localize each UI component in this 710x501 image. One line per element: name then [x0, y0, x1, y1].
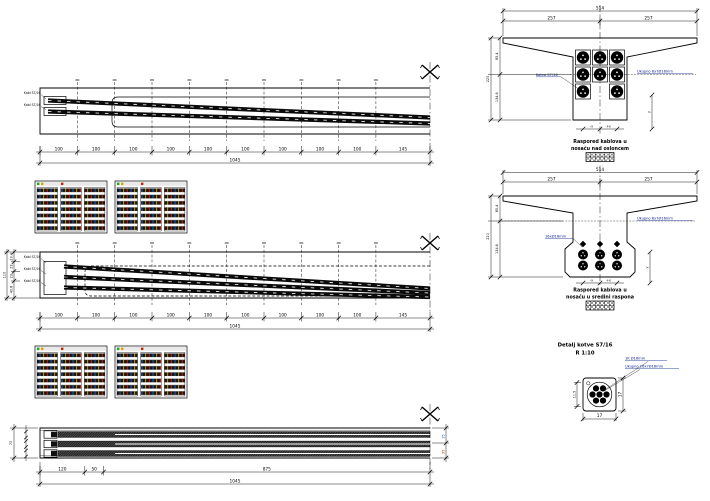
- dim-label: 23.4: [9, 253, 13, 261]
- leader-line: [41, 259, 46, 287]
- cross-section-over-support: 514 257 257 Ukupno 8x7Ø16mm Kotva S7/16 …: [486, 5, 699, 168]
- dim-label: 100: [279, 146, 287, 152]
- dim-label: 100: [167, 312, 175, 318]
- dim-label: 23: [9, 274, 13, 278]
- total-cables-label: Ukupno 8x7Ø16mm: [637, 216, 673, 221]
- dim-label: 35: [441, 434, 445, 438]
- dim-label: 100: [204, 312, 212, 318]
- axis-dimension: -x +x y: [576, 93, 654, 131]
- section-caption: Raspored kablova u: [573, 287, 627, 293]
- dim-label: 40.8: [9, 286, 13, 294]
- cable-leader-label: Kabl S7/16: [24, 103, 41, 107]
- section-caption: nosaču u sredini raspona: [566, 293, 634, 300]
- dim-label: 145: [399, 146, 407, 152]
- dim-label: 100: [167, 146, 175, 152]
- dim-label: 875: [263, 466, 271, 472]
- technical-drawing: Kabl S7/16 Kabl S7/16 100 100 100 100 10…: [0, 0, 710, 501]
- axis-label: y: [647, 111, 651, 113]
- axis-label: +x: [606, 278, 611, 282]
- dim-label: 100: [241, 146, 249, 152]
- strand-label: 1K Ø16mm: [625, 355, 646, 360]
- cable-band: [48, 101, 430, 124]
- cable-leader-label: Kabl S7/16: [24, 255, 41, 259]
- drawing-canvas: Kabl S7/16 Kabl S7/16 100 100 100 100 10…: [0, 0, 710, 501]
- dim-label: 100: [316, 312, 324, 318]
- dim-label: 100: [129, 312, 137, 318]
- dimension-chain: 120 50 875 1045: [36, 462, 434, 487]
- anchor-block: [44, 431, 57, 457]
- dim-label: 100: [241, 312, 249, 318]
- dim-label: 100: [279, 312, 287, 318]
- left-dimension-chain: 70: [9, 424, 38, 462]
- cable-band: [64, 267, 430, 298]
- dim-label: 100: [92, 312, 100, 318]
- dim-label: 257: [644, 15, 652, 21]
- cable-position-table: [35, 181, 107, 233]
- location-key-icon: [586, 153, 614, 162]
- dimension-chain: 100 100 100 100 100 100 100 100 100 145 …: [36, 312, 434, 332]
- axis-label: -x: [590, 278, 593, 282]
- total-cables-label: Ukupno 8x7Ø16mm: [637, 69, 673, 74]
- dim-label: 85.4: [495, 52, 499, 60]
- axis-label: +x: [606, 124, 611, 128]
- dim-label: 11.5: [572, 391, 576, 399]
- cross-section-midspan: 514 257 257 Ukupno 8x7Ø16mm 16xØ16mm 85.…: [486, 166, 699, 310]
- detail-title: Detalj kotve S7/16: [558, 343, 613, 349]
- plan-view: 70 35 35 120 50 875 1045: [9, 404, 449, 487]
- cable-position-table: [115, 346, 187, 398]
- dim-label: 100: [353, 312, 361, 318]
- left-dimension-chain: 85.4 134.6 220: [486, 36, 571, 122]
- dim-label: 23: [9, 264, 13, 268]
- dim-total-label: 1045: [230, 323, 241, 329]
- cable-leader-label: Kabl S7/16: [24, 91, 41, 95]
- dim-total-label: 1045: [230, 478, 241, 484]
- leader-line: [573, 238, 582, 247]
- location-key-icon: [586, 301, 614, 310]
- anchor-label: Kotva S7/16: [536, 73, 558, 77]
- dim-total-label: 220: [486, 233, 490, 239]
- cable-leader-label: Kabl S7/16: [24, 279, 41, 283]
- dim-label: 100: [129, 146, 137, 152]
- dim-total-label: 1045: [230, 157, 241, 163]
- strand-dots: [589, 385, 609, 403]
- dim-label: 17: [597, 413, 603, 419]
- dim-label: 257: [644, 176, 652, 182]
- dim-label: 120: [58, 466, 66, 472]
- grout-hole: [587, 382, 590, 385]
- section-caption: Raspored kablova u: [573, 139, 627, 145]
- cable-leader-label: Kabl S7/16: [24, 267, 41, 271]
- elevation-midspan-view: Kabl S7/16 Kabl S7/16 Kabl S7/16 23.4 23…: [2, 233, 439, 332]
- dimension-chain: 100 100 100 100 100 100 100 100 100 145 …: [36, 146, 434, 166]
- dim-label: 100: [92, 146, 100, 152]
- dim-label: 100: [353, 146, 361, 152]
- dim-label: 100: [55, 146, 63, 152]
- cable-position-table: [35, 346, 107, 398]
- section-caption: nosaču nad osloncem: [571, 145, 629, 152]
- dim-label: 257: [547, 15, 555, 21]
- right-dimension-chain: 35 35: [432, 424, 449, 462]
- detail-scale: R 1:10: [575, 351, 594, 357]
- dim-label: 134.6: [495, 244, 499, 254]
- dim-label: 100: [55, 312, 63, 318]
- dim-label: 100: [204, 146, 212, 152]
- axis-label: -x: [590, 124, 593, 128]
- dim-total-label: 220: [486, 76, 490, 82]
- dim-label: 134.6: [495, 92, 499, 102]
- total-strands-label: Ukupno 16x7Ø16mm: [625, 363, 664, 368]
- dim-label: 17: [617, 392, 623, 398]
- cable-duct-band: [58, 432, 430, 457]
- duct-label: 16xØ16mm: [545, 233, 567, 238]
- dim-total-label: 70: [9, 441, 13, 445]
- dim-label: 85.4: [495, 205, 499, 213]
- dim-label: 100: [316, 146, 324, 152]
- dim-label: 257: [547, 176, 555, 182]
- cable-position-table: [115, 181, 187, 233]
- dim-total-label: 110: [2, 272, 6, 278]
- dim-label: 35: [441, 450, 445, 454]
- elevation-over-support-view: Kabl S7/16 Kabl S7/16 100 100 100 100 10…: [24, 62, 440, 166]
- dim-label: 145: [399, 312, 407, 318]
- axis-label: y: [645, 266, 649, 268]
- dim-label: 50: [91, 466, 97, 472]
- anchor-detail: Detalj kotve S7/16 R 1:10 1K Ø16mm Ukupn…: [558, 343, 679, 422]
- anchor-block: [44, 262, 66, 295]
